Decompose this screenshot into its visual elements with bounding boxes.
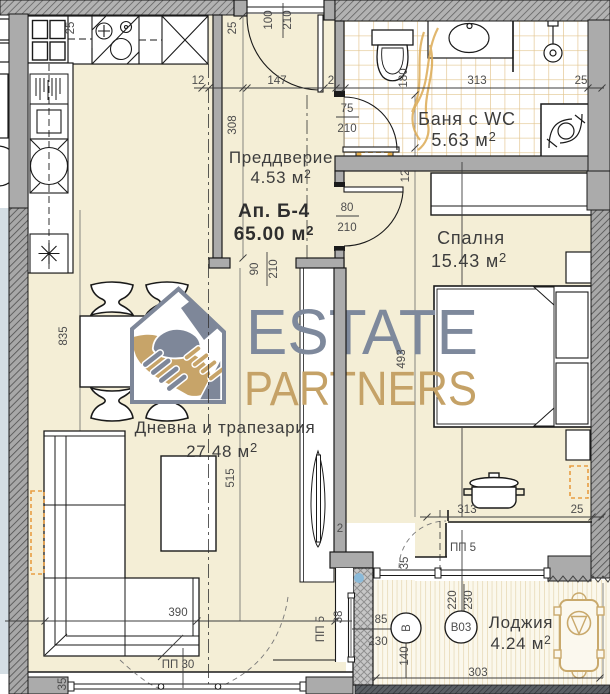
svg-text:308: 308 bbox=[227, 115, 239, 134]
svg-text:390: 390 bbox=[168, 607, 187, 619]
svg-text:Дневна и трапезария: Дневна и трапезария bbox=[135, 418, 316, 437]
svg-text:Спалня: Спалня bbox=[437, 228, 505, 248]
svg-text:313: 313 bbox=[467, 75, 486, 87]
svg-text:2: 2 bbox=[328, 75, 334, 87]
svg-text:25: 25 bbox=[65, 22, 77, 35]
svg-text:100: 100 bbox=[263, 10, 275, 29]
svg-text:230: 230 bbox=[368, 636, 387, 648]
svg-text:313: 313 bbox=[457, 504, 476, 516]
svg-text:85: 85 bbox=[375, 614, 388, 626]
svg-text:25: 25 bbox=[575, 75, 588, 87]
svg-text:835: 835 bbox=[58, 326, 70, 345]
svg-text:2: 2 bbox=[337, 523, 343, 535]
svg-text:Преддверие: Преддверие bbox=[229, 148, 333, 167]
svg-text:12: 12 bbox=[400, 170, 412, 183]
svg-text:35: 35 bbox=[399, 557, 411, 570]
svg-text:515: 515 bbox=[225, 468, 237, 487]
svg-text:140: 140 bbox=[399, 646, 411, 665]
svg-text:PARTNERS: PARTNERS bbox=[244, 363, 477, 416]
svg-text:210: 210 bbox=[268, 259, 280, 278]
svg-text:38: 38 bbox=[333, 611, 345, 624]
svg-text:Баня с WC: Баня с WC bbox=[418, 109, 516, 129]
svg-text:493: 493 bbox=[396, 349, 408, 368]
svg-text:4.53 м2: 4.53 м2 bbox=[250, 167, 311, 187]
svg-text:ПП 5: ПП 5 bbox=[315, 616, 327, 642]
svg-text:147: 147 bbox=[267, 75, 286, 87]
svg-text:5.63 м2: 5.63 м2 bbox=[431, 129, 496, 150]
svg-text:25: 25 bbox=[571, 504, 584, 516]
svg-text:ESTATE: ESTATE bbox=[246, 296, 478, 368]
svg-text:180: 180 bbox=[398, 68, 410, 87]
svg-text:27.48 м2: 27.48 м2 bbox=[186, 440, 258, 461]
svg-text:Лоджия: Лоджия bbox=[489, 613, 553, 632]
svg-text:210: 210 bbox=[337, 222, 356, 234]
svg-text:ПП 30: ПП 30 bbox=[162, 659, 195, 671]
svg-text:35: 35 bbox=[57, 678, 69, 691]
svg-text:Ап. Б-4: Ап. Б-4 bbox=[238, 201, 310, 222]
svg-text:15.43 м2: 15.43 м2 bbox=[431, 250, 507, 271]
svg-text:25: 25 bbox=[227, 22, 239, 35]
svg-text:230: 230 bbox=[463, 590, 475, 609]
svg-text:90: 90 bbox=[249, 263, 261, 276]
svg-text:65.00 м2: 65.00 м2 bbox=[234, 223, 315, 245]
svg-text:210: 210 bbox=[282, 10, 294, 29]
svg-text:4.24 м2: 4.24 м2 bbox=[490, 633, 551, 653]
svg-text:210: 210 bbox=[337, 123, 356, 135]
svg-text:80: 80 bbox=[341, 202, 354, 214]
svg-text:220: 220 bbox=[447, 590, 459, 609]
svg-text:12: 12 bbox=[192, 75, 205, 87]
svg-text:В03: В03 bbox=[451, 622, 471, 634]
svg-text:В: В bbox=[401, 624, 413, 632]
svg-text:75: 75 bbox=[341, 103, 354, 115]
svg-text:303: 303 bbox=[468, 667, 487, 679]
svg-text:ПП 5: ПП 5 bbox=[450, 542, 476, 554]
